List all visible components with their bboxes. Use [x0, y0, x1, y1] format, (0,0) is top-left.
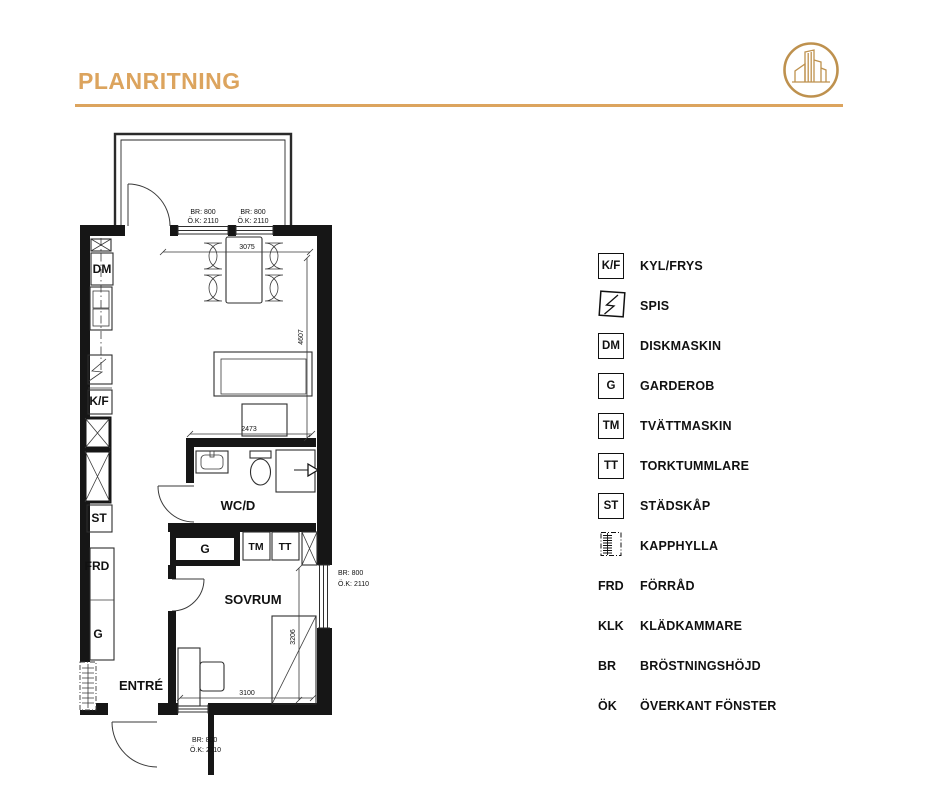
window-label-bottom: BR: 800 Ö.K: 2110 [190, 737, 221, 754]
fixture-label-st: ST [91, 511, 107, 525]
svg-text:Ö.K: 2110: Ö.K: 2110 [237, 217, 268, 225]
legend-label: KYL/FRYS [640, 259, 703, 273]
sovrum-door [172, 579, 204, 611]
legend-label: TVÄTTMASKIN [640, 419, 732, 433]
legend-item-kladkammare: KLK KLÄDKAMMARE [598, 612, 777, 640]
legend-symbol-g: G [598, 373, 624, 399]
legend-item-overkant-fonster: ÖK ÖVERKANT FÖNSTER [598, 692, 777, 720]
hall-sovrum-wall [168, 565, 176, 705]
dim-2473: 2473 [241, 426, 257, 433]
fixture-label-frd: FRD [85, 559, 110, 573]
dim-3100: 3100 [239, 690, 255, 697]
window-label-top-right: BR: 800 Ö.K: 2110 [237, 209, 268, 225]
legend-label: KAPPHYLLA [640, 539, 718, 553]
legend-item-kylfrys: K/F KYL/FRYS [598, 252, 777, 280]
window-label-right: BR: 800 Ö.K: 2110 [338, 570, 369, 588]
legend-symbol-tm: TM [598, 413, 624, 439]
legend-symbol-klk: KLK [598, 619, 624, 633]
washbasin [196, 451, 228, 473]
svg-text:BR: 800: BR: 800 [240, 209, 265, 216]
svg-text:Ö.K: 2110: Ö.K: 2110 [190, 746, 221, 754]
entrance-door [112, 722, 157, 767]
sink-counter [90, 238, 112, 372]
window-top-right [236, 226, 273, 236]
wcd-area [168, 438, 318, 532]
legend-item-garderob: G GARDEROB [598, 372, 777, 400]
fixture-label-kf: K/F [89, 394, 108, 408]
stove [88, 355, 112, 388]
toilet [250, 451, 271, 485]
room-label-sovrum: SOVRUM [224, 592, 281, 607]
outer-walls [80, 225, 332, 775]
legend-item-tvattmaskin: TM TVÄTTMASKIN [598, 412, 777, 440]
legend-symbol-frd: FRD [598, 579, 624, 593]
svg-text:Ö.K: 2110: Ö.K: 2110 [338, 580, 369, 588]
legend-item-brostningshojd: BR BRÖSTNINGSHÖJD [598, 652, 777, 680]
dim-4607: 4607 [298, 329, 305, 345]
legend-symbol-tt: TT [598, 453, 624, 479]
window-label-top-left: BR: 800 Ö.K: 2110 [187, 209, 218, 225]
balcony-door [128, 184, 170, 226]
fixture-label-g-sovrum: G [200, 542, 209, 556]
shaft-box-small [302, 532, 317, 565]
legend-item-kapphylla: KAPPHYLLA [598, 532, 777, 560]
legend-label: STÄDSKÅP [640, 499, 710, 513]
closet-row [170, 532, 317, 566]
legend-label: FÖRRÅD [640, 579, 695, 593]
legend-label: DISKMASKIN [640, 339, 721, 353]
fixture-label-dm: DM [93, 262, 112, 276]
balcony [115, 134, 291, 231]
legend-symbol-st: ST [598, 493, 624, 519]
fixture-label-g-hall: G [93, 627, 102, 641]
svg-text:BR: 800: BR: 800 [192, 737, 217, 744]
legend-symbol-kf: K/F [598, 253, 624, 279]
legend-item-torktummlare: TT TORKTUMMLARE [598, 452, 777, 480]
desk-and-chair [178, 648, 224, 706]
entry-arrow-icon [294, 464, 318, 476]
kapphylla-symbol [80, 662, 96, 710]
window-top-left [178, 226, 228, 236]
legend-label: SPIS [640, 299, 669, 313]
fixture-label-tt: TT [279, 541, 292, 553]
legend-label: GARDEROB [640, 379, 715, 393]
legend: K/F KYL/FRYS SPIS DM DISKMASKIN G GARDER… [598, 252, 777, 732]
svg-text:Ö.K: 2110: Ö.K: 2110 [187, 217, 218, 225]
fixture-label-tm: TM [248, 541, 263, 553]
floor-plan: WC/D SOVRUM ENTRÉ DM K/F ST FRD G G TM T… [0, 0, 933, 787]
legend-item-stadskap: ST STÄDSKÅP [598, 492, 777, 520]
kapphylla-icon [598, 530, 626, 563]
room-label-wcd: WC/D [221, 498, 256, 513]
legend-label: ÖVERKANT FÖNSTER [640, 699, 777, 713]
shaft-boxes [85, 418, 110, 502]
dim-3075: 3075 [239, 244, 255, 251]
sofa [214, 352, 312, 396]
legend-symbol-dm: DM [598, 333, 624, 359]
svg-text:BR: 800: BR: 800 [190, 209, 215, 216]
legend-symbol-ok: ÖK [598, 699, 617, 713]
legend-label: BRÖSTNINGSHÖJD [640, 659, 761, 673]
legend-symbol-br: BR [598, 659, 616, 673]
bed [272, 616, 316, 704]
legend-label: TORKTUMMLARE [640, 459, 749, 473]
floorplan-page: PLANRITNING [0, 0, 933, 787]
window-right [318, 565, 330, 628]
legend-item-spis: SPIS [598, 292, 777, 320]
room-label-entre: ENTRÉ [119, 678, 163, 693]
legend-item-forrad: FRD FÖRRÅD [598, 572, 777, 600]
legend-label: KLÄDKAMMARE [640, 619, 742, 633]
dim-3206: 3206 [290, 629, 297, 645]
svg-text:BR: 800: BR: 800 [338, 570, 363, 577]
wc-door [158, 486, 194, 522]
legend-item-diskmaskin: DM DISKMASKIN [598, 332, 777, 360]
spis-icon [598, 290, 626, 323]
